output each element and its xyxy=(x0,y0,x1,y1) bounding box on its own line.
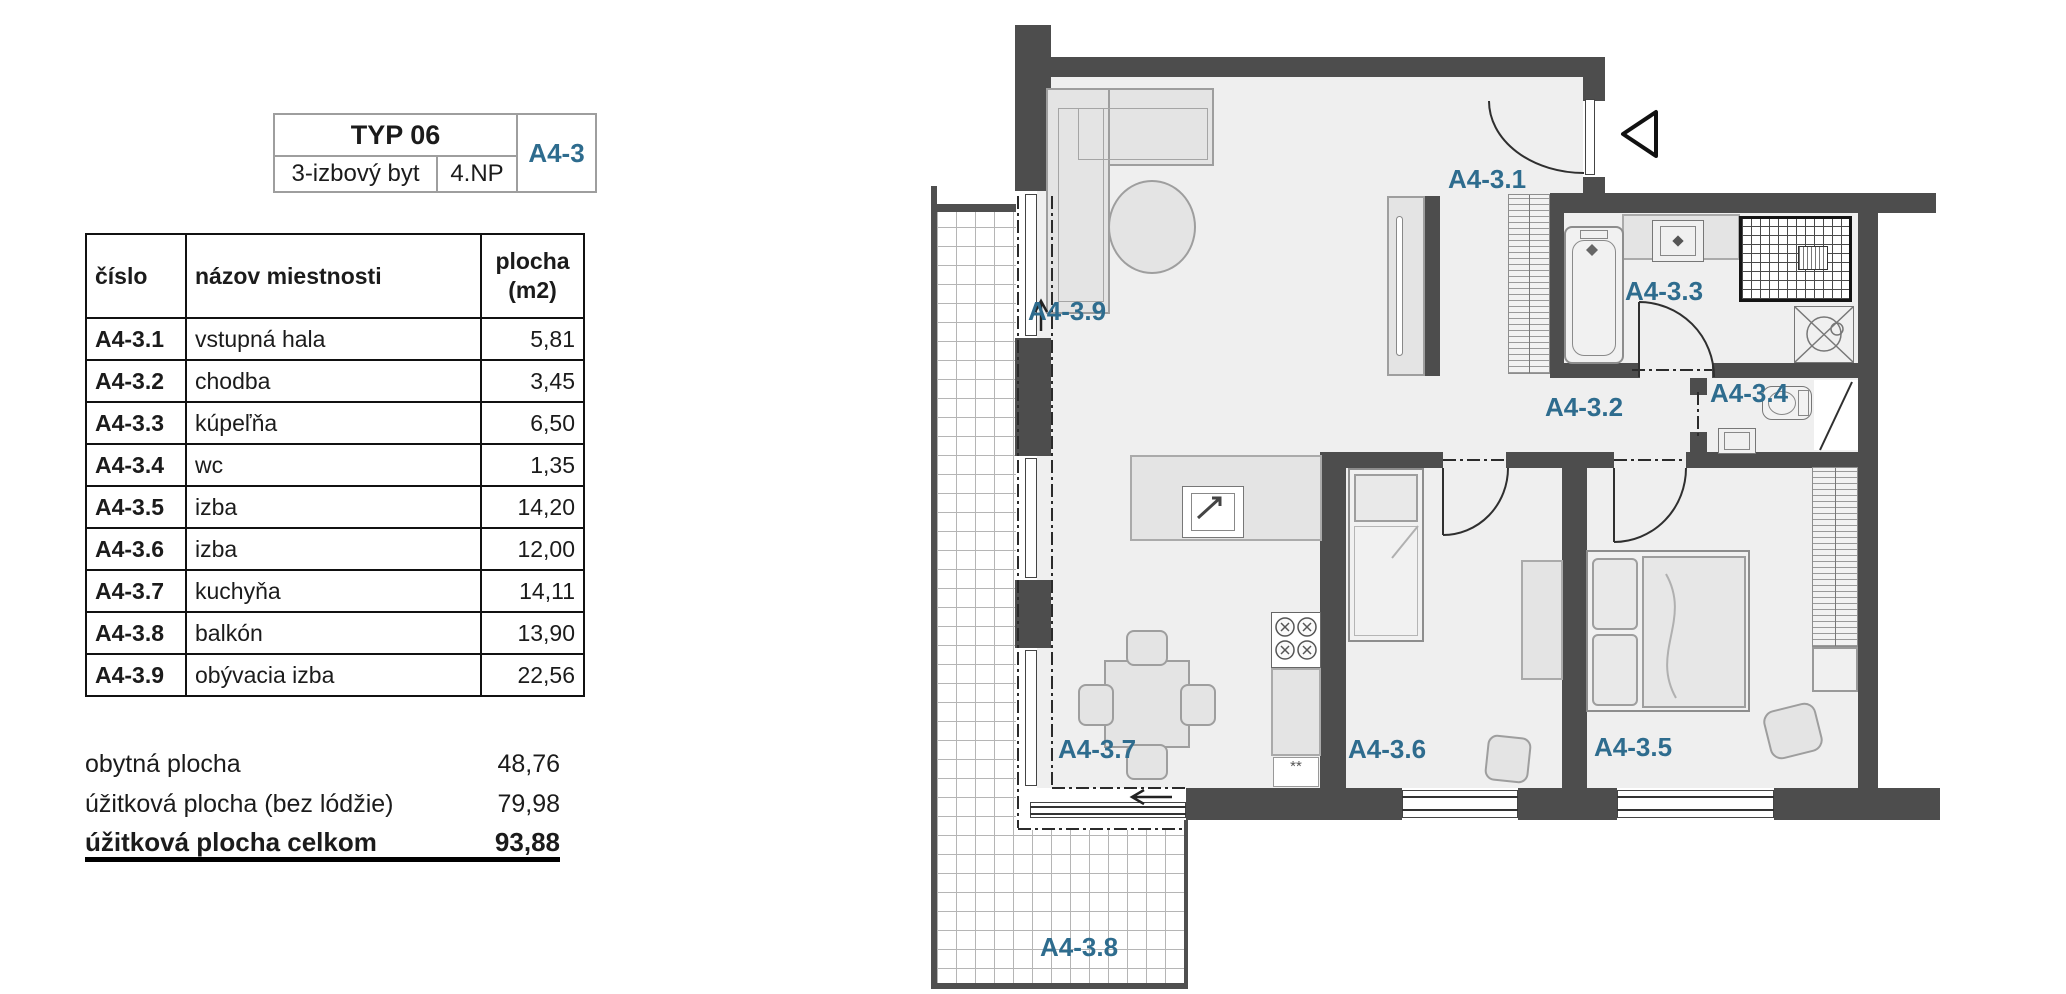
wall-topright xyxy=(1550,193,1936,213)
summary-value: 48,76 xyxy=(497,750,560,779)
summary-value: 79,98 xyxy=(497,790,560,819)
desk xyxy=(1521,560,1563,680)
bed-blanket xyxy=(1642,556,1746,708)
table-row: A4-3.9obývacia izba22,56 xyxy=(86,654,584,696)
wall-bathroom-bottom-left xyxy=(1550,363,1640,378)
table-row: A4-3.5izba14,20 xyxy=(86,486,584,528)
sofa-seat-line xyxy=(1058,108,1104,302)
summary-label: úžitková plocha celkom xyxy=(85,827,377,858)
window-room36 xyxy=(1402,790,1518,818)
summary-row-total: úžitková plocha celkom 93,88 xyxy=(85,822,560,862)
wall-top xyxy=(1051,57,1605,77)
table-row: A4-3.6izba12,00 xyxy=(86,528,584,570)
title-layout: 3-izbový byt xyxy=(273,155,438,193)
header-nazov: názov miestnosti xyxy=(186,234,481,318)
room-label-a4-3-5: A4-3.5 xyxy=(1594,732,1672,763)
wall-entry-jamb-top xyxy=(1583,77,1605,101)
room-area-table: číslo názov miestnosti plocha(m2) A4-3.1… xyxy=(85,233,585,697)
wc-door-niche xyxy=(1814,380,1858,450)
room-label-a4-3-4: A4-3.4 xyxy=(1710,378,1788,409)
round-table xyxy=(1108,180,1196,274)
wall-corridor-bottom-2 xyxy=(1506,452,1614,468)
chair xyxy=(1126,630,1168,666)
balcony-edge-right xyxy=(1184,820,1188,988)
balcony-window-mid xyxy=(1025,458,1037,578)
balcony-outer-wall-left xyxy=(931,186,937,988)
wall-bathroom-left xyxy=(1550,213,1564,378)
bed-blanket xyxy=(1354,526,1418,636)
wall-bottom-3 xyxy=(1774,788,1940,820)
wall-corridor-bottom-1 xyxy=(1320,452,1443,468)
balcony-door-lower xyxy=(1025,650,1037,786)
room-label-a4-3-3: A4-3.3 xyxy=(1625,276,1703,307)
balcony-outer-wall-bottom xyxy=(931,983,1188,989)
bed-pillow xyxy=(1592,558,1638,630)
summary-underline xyxy=(85,857,560,862)
tv-cabinet-back xyxy=(1425,196,1440,376)
bathtub-faucet xyxy=(1580,230,1608,239)
wc-sink-basin xyxy=(1724,432,1750,450)
bathtub-inner xyxy=(1572,240,1616,356)
summary-value: 93,88 xyxy=(495,827,560,858)
window-room35 xyxy=(1617,790,1774,818)
summary-row: úžitková plocha (bez lódžie) 79,98 xyxy=(85,784,560,824)
table-row: A4-3.1vstupná hala5,81 xyxy=(86,318,584,360)
kitchen-sink-basin xyxy=(1191,493,1235,531)
desk-chair xyxy=(1484,734,1533,784)
table-row: A4-3.8balkón13,90 xyxy=(86,612,584,654)
toilet-tank xyxy=(1798,390,1809,416)
stove xyxy=(1271,612,1321,668)
wall-wc-left-top xyxy=(1690,378,1707,395)
wall-right xyxy=(1858,213,1878,820)
bed-pillow xyxy=(1592,634,1638,706)
entry-door-leaf xyxy=(1585,99,1595,175)
washing-machine xyxy=(1794,306,1854,363)
wall-room36-room35 xyxy=(1562,468,1587,788)
balcony-hatch-bottom xyxy=(937,830,1186,988)
balcony-door-bottom xyxy=(1030,802,1186,818)
summary-label: obytná plocha xyxy=(85,750,241,779)
title-unit-code: A4-3 xyxy=(516,113,597,193)
room-label-a4-3-2: A4-3.2 xyxy=(1545,392,1623,423)
floorplan-sheet: { "panel": { "title_block": { "type": "T… xyxy=(0,0,2066,994)
bedroom-wardrobe xyxy=(1812,467,1858,647)
wall-corridor-bottom-3 xyxy=(1686,452,1858,468)
title-type: TYP 06 xyxy=(273,113,518,157)
title-floor: 4.NP xyxy=(436,155,518,193)
shower-tile-area xyxy=(1739,216,1852,302)
wall-wc-left-bottom xyxy=(1690,432,1707,453)
wall-bottom-1 xyxy=(1186,788,1402,820)
entrance-marker-icon xyxy=(1623,112,1656,156)
hall-wardrobe xyxy=(1508,194,1550,374)
table-header-row: číslo názov miestnosti plocha(m2) xyxy=(86,234,584,318)
balcony-outer-wall-top xyxy=(931,204,1016,212)
room-label-a4-3-8: A4-3.8 xyxy=(1040,932,1118,963)
bed-pillow xyxy=(1354,474,1418,522)
summary-row: obytná plocha 48,76 xyxy=(85,744,560,784)
fridge-marker: ** xyxy=(1273,757,1319,787)
room-label-a4-3-6: A4-3.6 xyxy=(1348,734,1426,765)
bedroom-wardrobe-lower xyxy=(1812,647,1858,692)
table-row: A4-3.3kúpeľňa6,50 xyxy=(86,402,584,444)
wall-kitchen-room36 xyxy=(1320,468,1346,788)
room-label-a4-3-7: A4-3.7 xyxy=(1058,734,1136,765)
header-cislo: číslo xyxy=(86,234,186,318)
room-label-a4-3-1: A4-3.1 xyxy=(1448,164,1526,195)
wall-bottom-2 xyxy=(1518,788,1617,820)
tv-screen xyxy=(1396,216,1403,356)
tv-cabinet xyxy=(1387,196,1425,376)
kitchen-counter-lower xyxy=(1271,668,1321,756)
table-row: A4-3.4wc1,35 xyxy=(86,444,584,486)
table-row: A4-3.2chodba3,45 xyxy=(86,360,584,402)
chair xyxy=(1180,684,1216,726)
wall-left-low-block xyxy=(1015,580,1051,648)
header-plocha: plocha(m2) xyxy=(481,234,584,318)
shower-drain xyxy=(1798,246,1828,270)
wall-left-mid-block xyxy=(1015,338,1051,456)
table-row: A4-3.7kuchyňa14,11 xyxy=(86,570,584,612)
wall-bathroom-bottom-right xyxy=(1712,363,1858,378)
room-label-a4-3-9: A4-3.9 xyxy=(1028,296,1106,327)
summary-label: úžitková plocha (bez lódžie) xyxy=(85,790,394,819)
chair xyxy=(1078,684,1114,726)
